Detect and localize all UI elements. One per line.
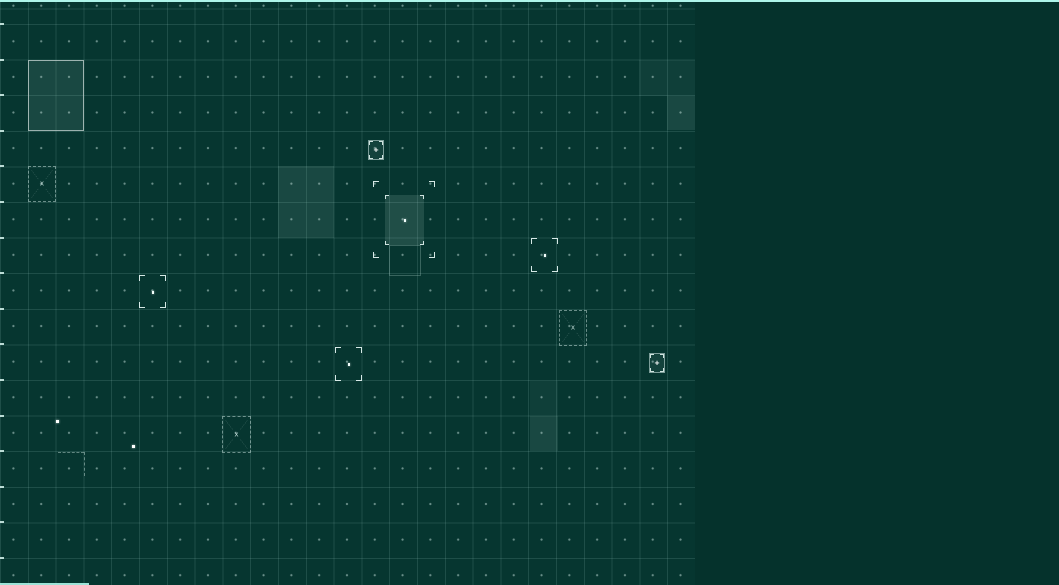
highlight-zone xyxy=(278,166,334,238)
bracket-corner-icon xyxy=(660,354,664,358)
row-tick xyxy=(0,237,4,239)
bracket-corner-icon xyxy=(429,181,435,187)
bracket-corner-icon xyxy=(385,195,389,199)
bracket-corner-icon xyxy=(160,302,166,308)
bracket-corner-icon xyxy=(552,266,558,272)
bracket-corner-icon xyxy=(335,347,341,353)
plus-icon: + xyxy=(655,358,660,367)
row-tick xyxy=(0,130,4,132)
hazard-marker[interactable]: x xyxy=(559,310,587,346)
row-tick xyxy=(0,272,4,274)
waypoint-dot xyxy=(56,420,59,423)
bracket-corner-icon xyxy=(531,266,537,272)
hazard-marker[interactable]: x xyxy=(28,166,56,202)
ghost-outline xyxy=(389,245,421,276)
x-glyph: x xyxy=(40,180,44,188)
bracket-corner-icon xyxy=(379,155,383,159)
bracket-corner-icon xyxy=(139,275,145,281)
row-tick xyxy=(0,23,4,25)
bracket-corner-icon xyxy=(373,181,379,187)
center-dot-icon xyxy=(152,291,154,294)
selected-zone[interactable] xyxy=(28,60,84,131)
bracket-corner-icon xyxy=(531,238,537,244)
bracket-corner-icon xyxy=(650,368,654,372)
construction-line xyxy=(84,452,85,476)
construction-line xyxy=(58,452,84,453)
highlight-zone xyxy=(639,60,695,96)
center-dot-icon xyxy=(544,254,546,257)
stage: x+x+x xyxy=(0,0,1059,585)
active-zone xyxy=(385,195,424,245)
hazard-marker[interactable]: x xyxy=(222,416,251,453)
highlight-zone xyxy=(530,416,558,451)
unit-marker[interactable]: + xyxy=(649,353,665,373)
row-tick xyxy=(0,343,4,345)
bracket-corner-icon xyxy=(356,347,362,353)
row-tick xyxy=(0,450,4,452)
row-tick xyxy=(0,165,4,167)
bracket-corner-icon xyxy=(369,155,373,159)
bracket-corner-icon xyxy=(379,141,383,145)
bracket-corner-icon xyxy=(139,302,145,308)
bracket-corner-icon xyxy=(552,238,558,244)
side-panel xyxy=(695,0,1059,585)
top-accent-line xyxy=(0,0,1059,2)
waypoint-dot xyxy=(132,445,135,448)
row-tick xyxy=(0,521,4,523)
bracket-corner-icon xyxy=(356,375,362,381)
plus-icon: + xyxy=(374,145,379,154)
row-tick xyxy=(0,308,4,310)
bracket-corner-icon xyxy=(373,252,379,258)
unit-marker[interactable]: + xyxy=(368,140,384,160)
row-tick xyxy=(0,379,4,381)
x-glyph: x xyxy=(571,324,575,332)
selection-marker[interactable] xyxy=(139,275,166,308)
selection-marker[interactable] xyxy=(335,347,362,381)
row-tick xyxy=(0,415,4,417)
row-tick xyxy=(0,557,4,559)
bracket-corner-icon xyxy=(429,252,435,258)
highlight-zone xyxy=(667,96,695,130)
bracket-corner-icon xyxy=(650,354,654,358)
x-glyph: x xyxy=(234,430,238,438)
center-dot-icon xyxy=(404,219,406,222)
bracket-corner-icon xyxy=(160,275,166,281)
row-tick xyxy=(0,201,4,203)
center-dot-icon xyxy=(348,363,350,366)
bracket-corner-icon xyxy=(369,141,373,145)
selection-marker[interactable] xyxy=(531,238,558,272)
row-tick xyxy=(0,59,4,61)
row-tick xyxy=(0,94,4,96)
bracket-corner-icon xyxy=(420,195,424,199)
tactical-grid[interactable]: x+x+x xyxy=(0,0,695,585)
bracket-corner-icon xyxy=(335,375,341,381)
highlight-zone xyxy=(530,381,558,416)
bracket-corner-icon xyxy=(660,368,664,372)
row-tick xyxy=(0,486,4,488)
